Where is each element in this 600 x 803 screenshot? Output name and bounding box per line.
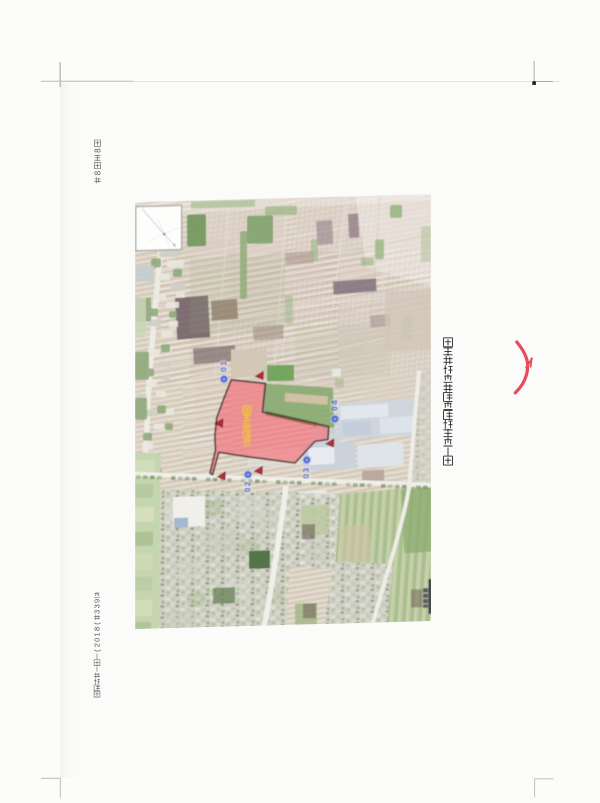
svg-text:2: 2 [93, 643, 102, 647]
svg-text:0: 0 [218, 367, 228, 372]
svg-text:3: 3 [301, 468, 311, 473]
svg-text:3: 3 [93, 604, 102, 608]
svg-text:4: 4 [329, 400, 339, 405]
svg-text:8: 8 [93, 148, 102, 153]
svg-text:1: 1 [218, 361, 228, 366]
svg-text:0: 0 [242, 487, 252, 492]
svg-text:2: 2 [242, 481, 252, 486]
svg-text:0: 0 [93, 638, 102, 642]
svg-text:3: 3 [93, 610, 102, 614]
svg-text:0: 0 [329, 406, 339, 411]
svg-text:8: 8 [93, 627, 102, 631]
svg-text:1: 1 [93, 632, 102, 636]
svg-text:9: 9 [93, 599, 102, 603]
svg-text:0: 0 [301, 474, 311, 479]
svg-text:8: 8 [93, 170, 102, 175]
